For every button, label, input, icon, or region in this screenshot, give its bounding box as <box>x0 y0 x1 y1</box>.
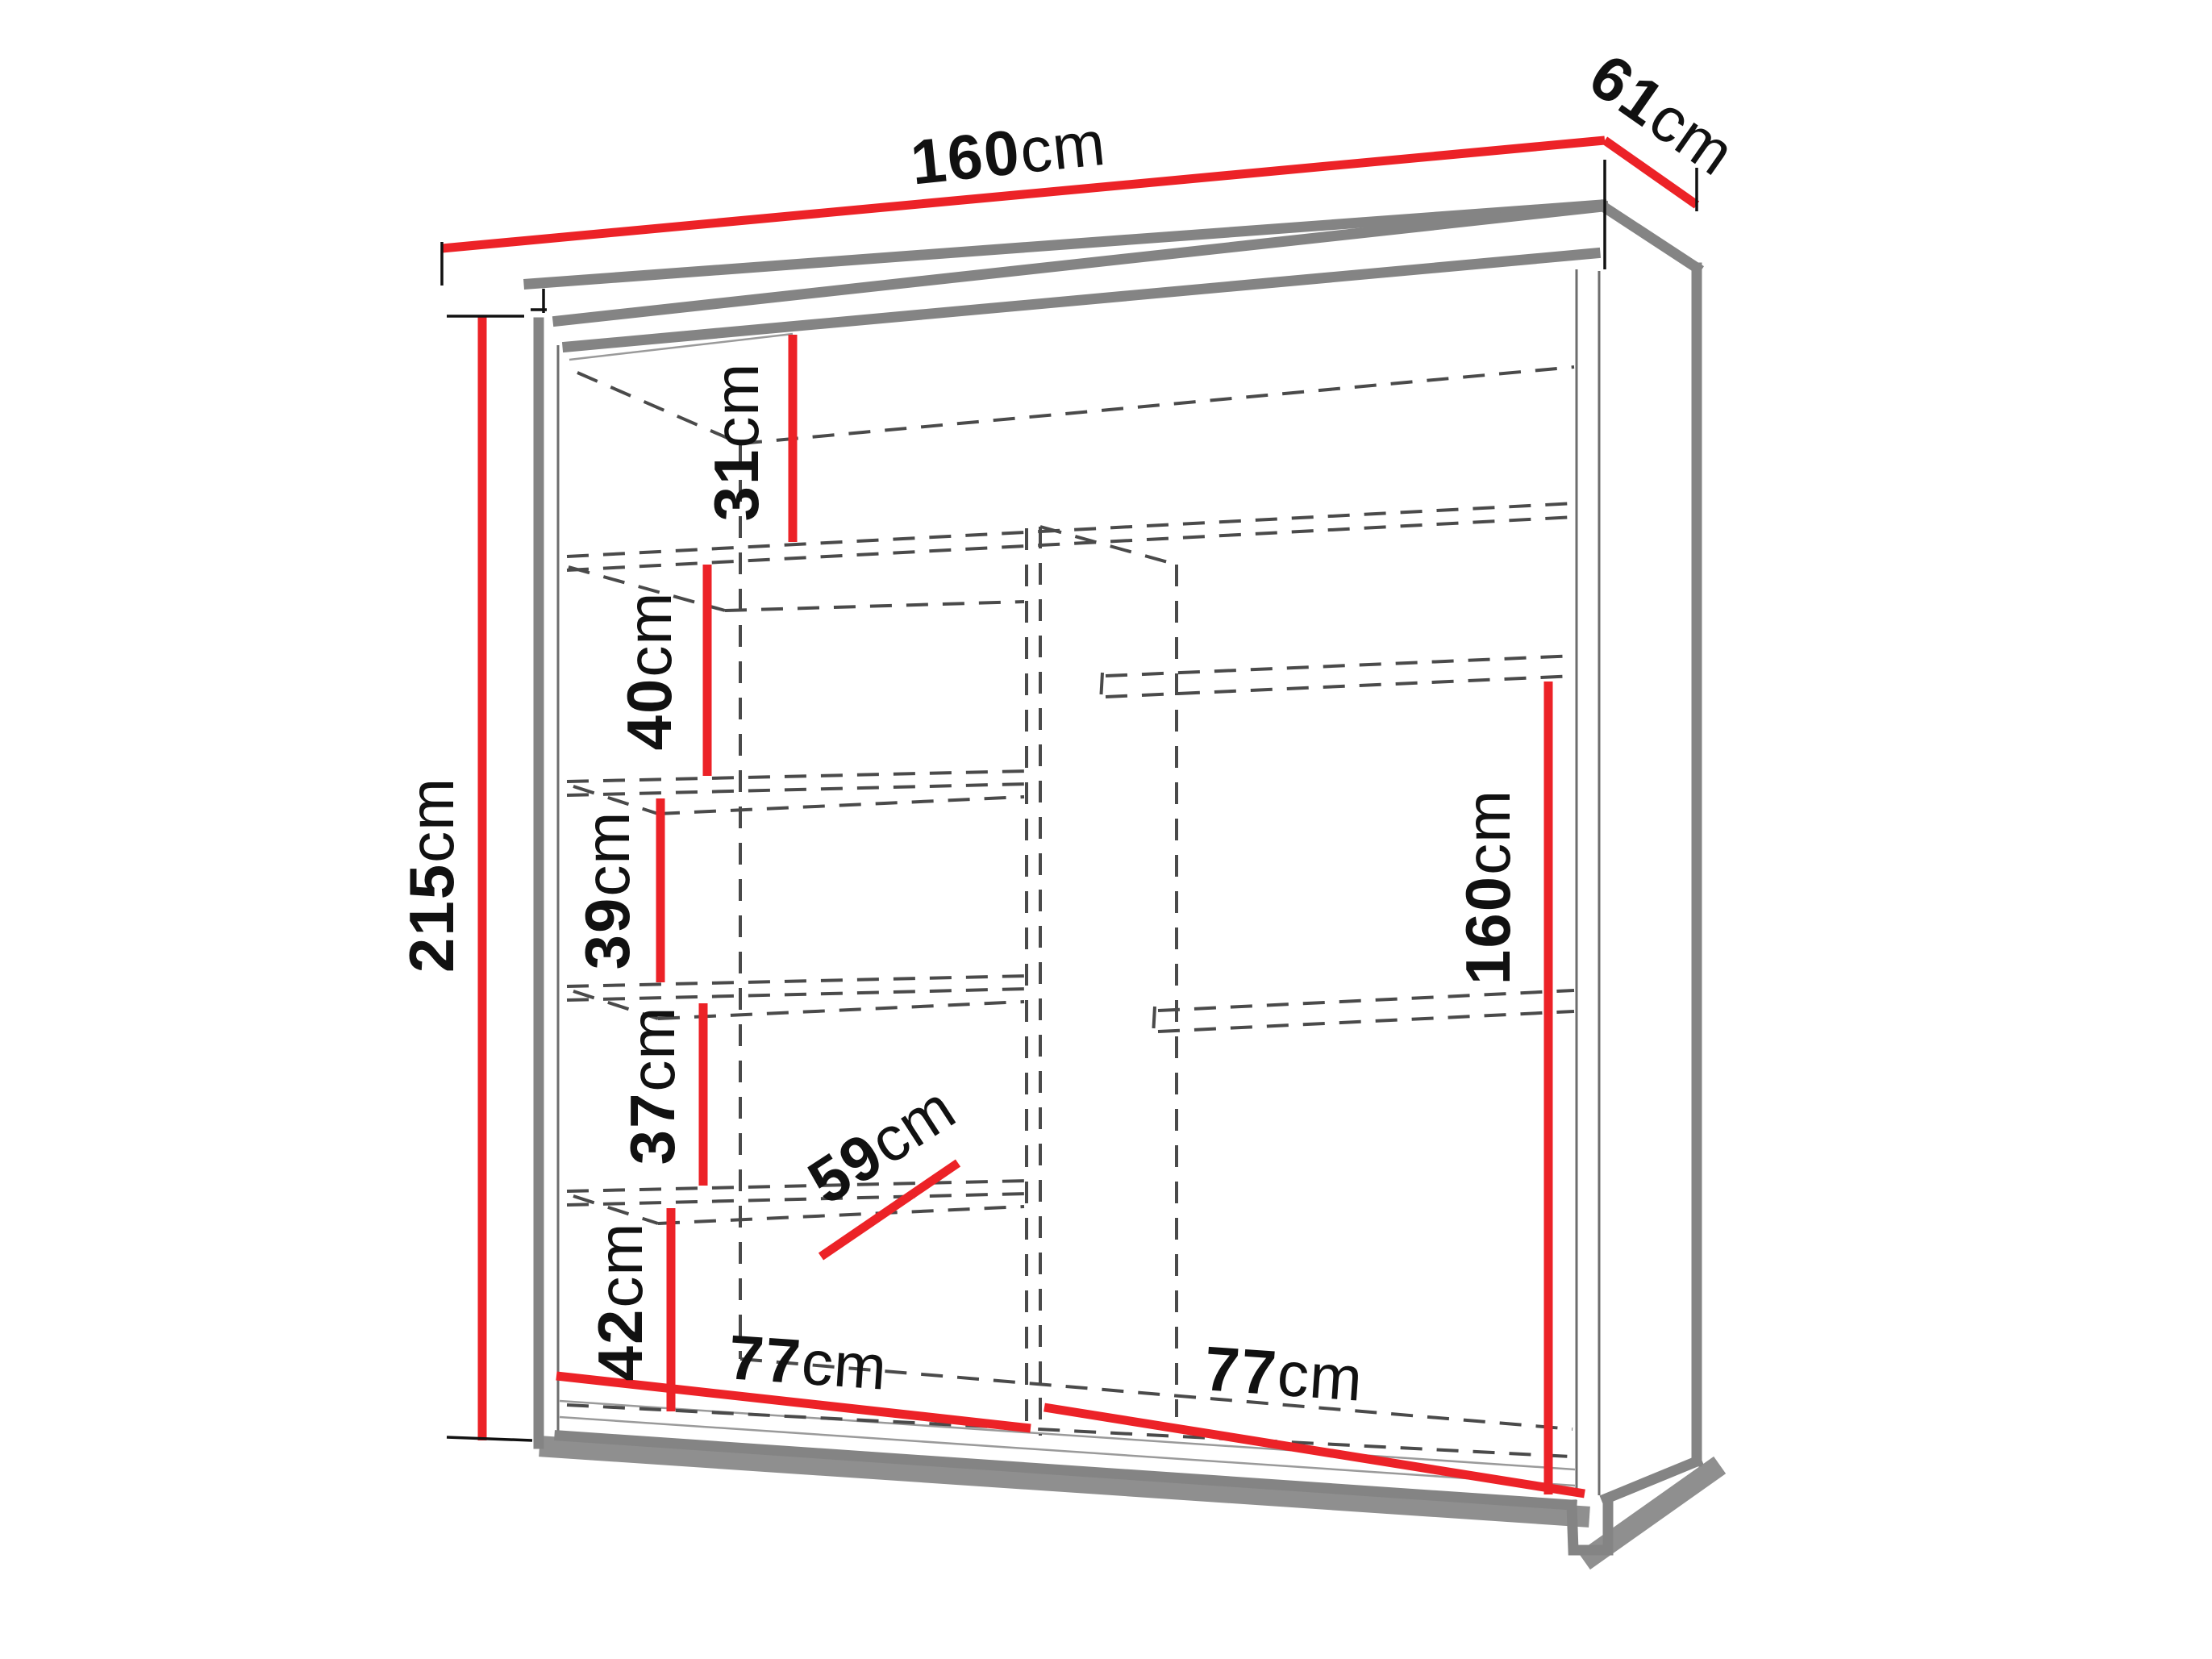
label-total-depth: 61cm <box>1577 40 1748 189</box>
label-hanging-height: 160cm <box>1452 790 1523 985</box>
interior-hidden-lines <box>567 367 1577 1457</box>
label-total-height: 215cm <box>396 777 467 973</box>
label-bottom-space: 42cm <box>585 1223 656 1382</box>
shelf2-front-edge <box>567 976 1027 986</box>
shelf3-thickness-edge <box>567 1194 1027 1205</box>
tick-height-bottom <box>447 1437 532 1440</box>
top-shelf-thickness-edge <box>567 517 1575 570</box>
shelf1-thickness-edge <box>567 784 1027 795</box>
side-top-edge <box>1603 206 1697 268</box>
shelf1-back-edge <box>658 797 1024 814</box>
diagram-canvas: 160cm 61cm 215cm 31cm 40cm 39cm 37cm 42c… <box>0 0 2212 1659</box>
label-total-width: 160cm <box>907 107 1109 198</box>
divider-top-depth-edge <box>1040 527 1177 565</box>
right-shelf-front-edge <box>1158 990 1574 1011</box>
label-shelf-space1: 40cm <box>614 592 685 751</box>
label-top-compartment: 31cm <box>701 363 772 522</box>
label-shelf-space2: 39cm <box>572 811 643 970</box>
right-shelf-end-cap <box>1153 1007 1155 1036</box>
shelf1-depth-edge <box>573 786 658 814</box>
label-shelf-space3: 37cm <box>617 1007 688 1165</box>
right-shelf-thickness-edge <box>1158 1011 1574 1032</box>
shelf3-front-edge <box>567 1181 1027 1191</box>
shelf3-depth-edge <box>573 1196 658 1223</box>
wardrobe-dimension-diagram: 160cm 61cm 215cm 31cm 40cm 39cm 37cm 42c… <box>0 0 2212 1659</box>
back-wall-top-edge <box>740 367 1574 444</box>
label-right-width: 77cm <box>1202 1332 1365 1415</box>
hanging-rail-end-cap <box>1101 673 1102 702</box>
label-left-width: 77cm <box>727 1321 889 1403</box>
top-shelf-back-edge <box>725 602 1024 611</box>
shelf2-thickness-edge <box>567 989 1027 1000</box>
shelf2-back-edge <box>658 1002 1024 1019</box>
base-shadow <box>550 1447 1579 1516</box>
shelf1-front-edge <box>567 771 1027 782</box>
